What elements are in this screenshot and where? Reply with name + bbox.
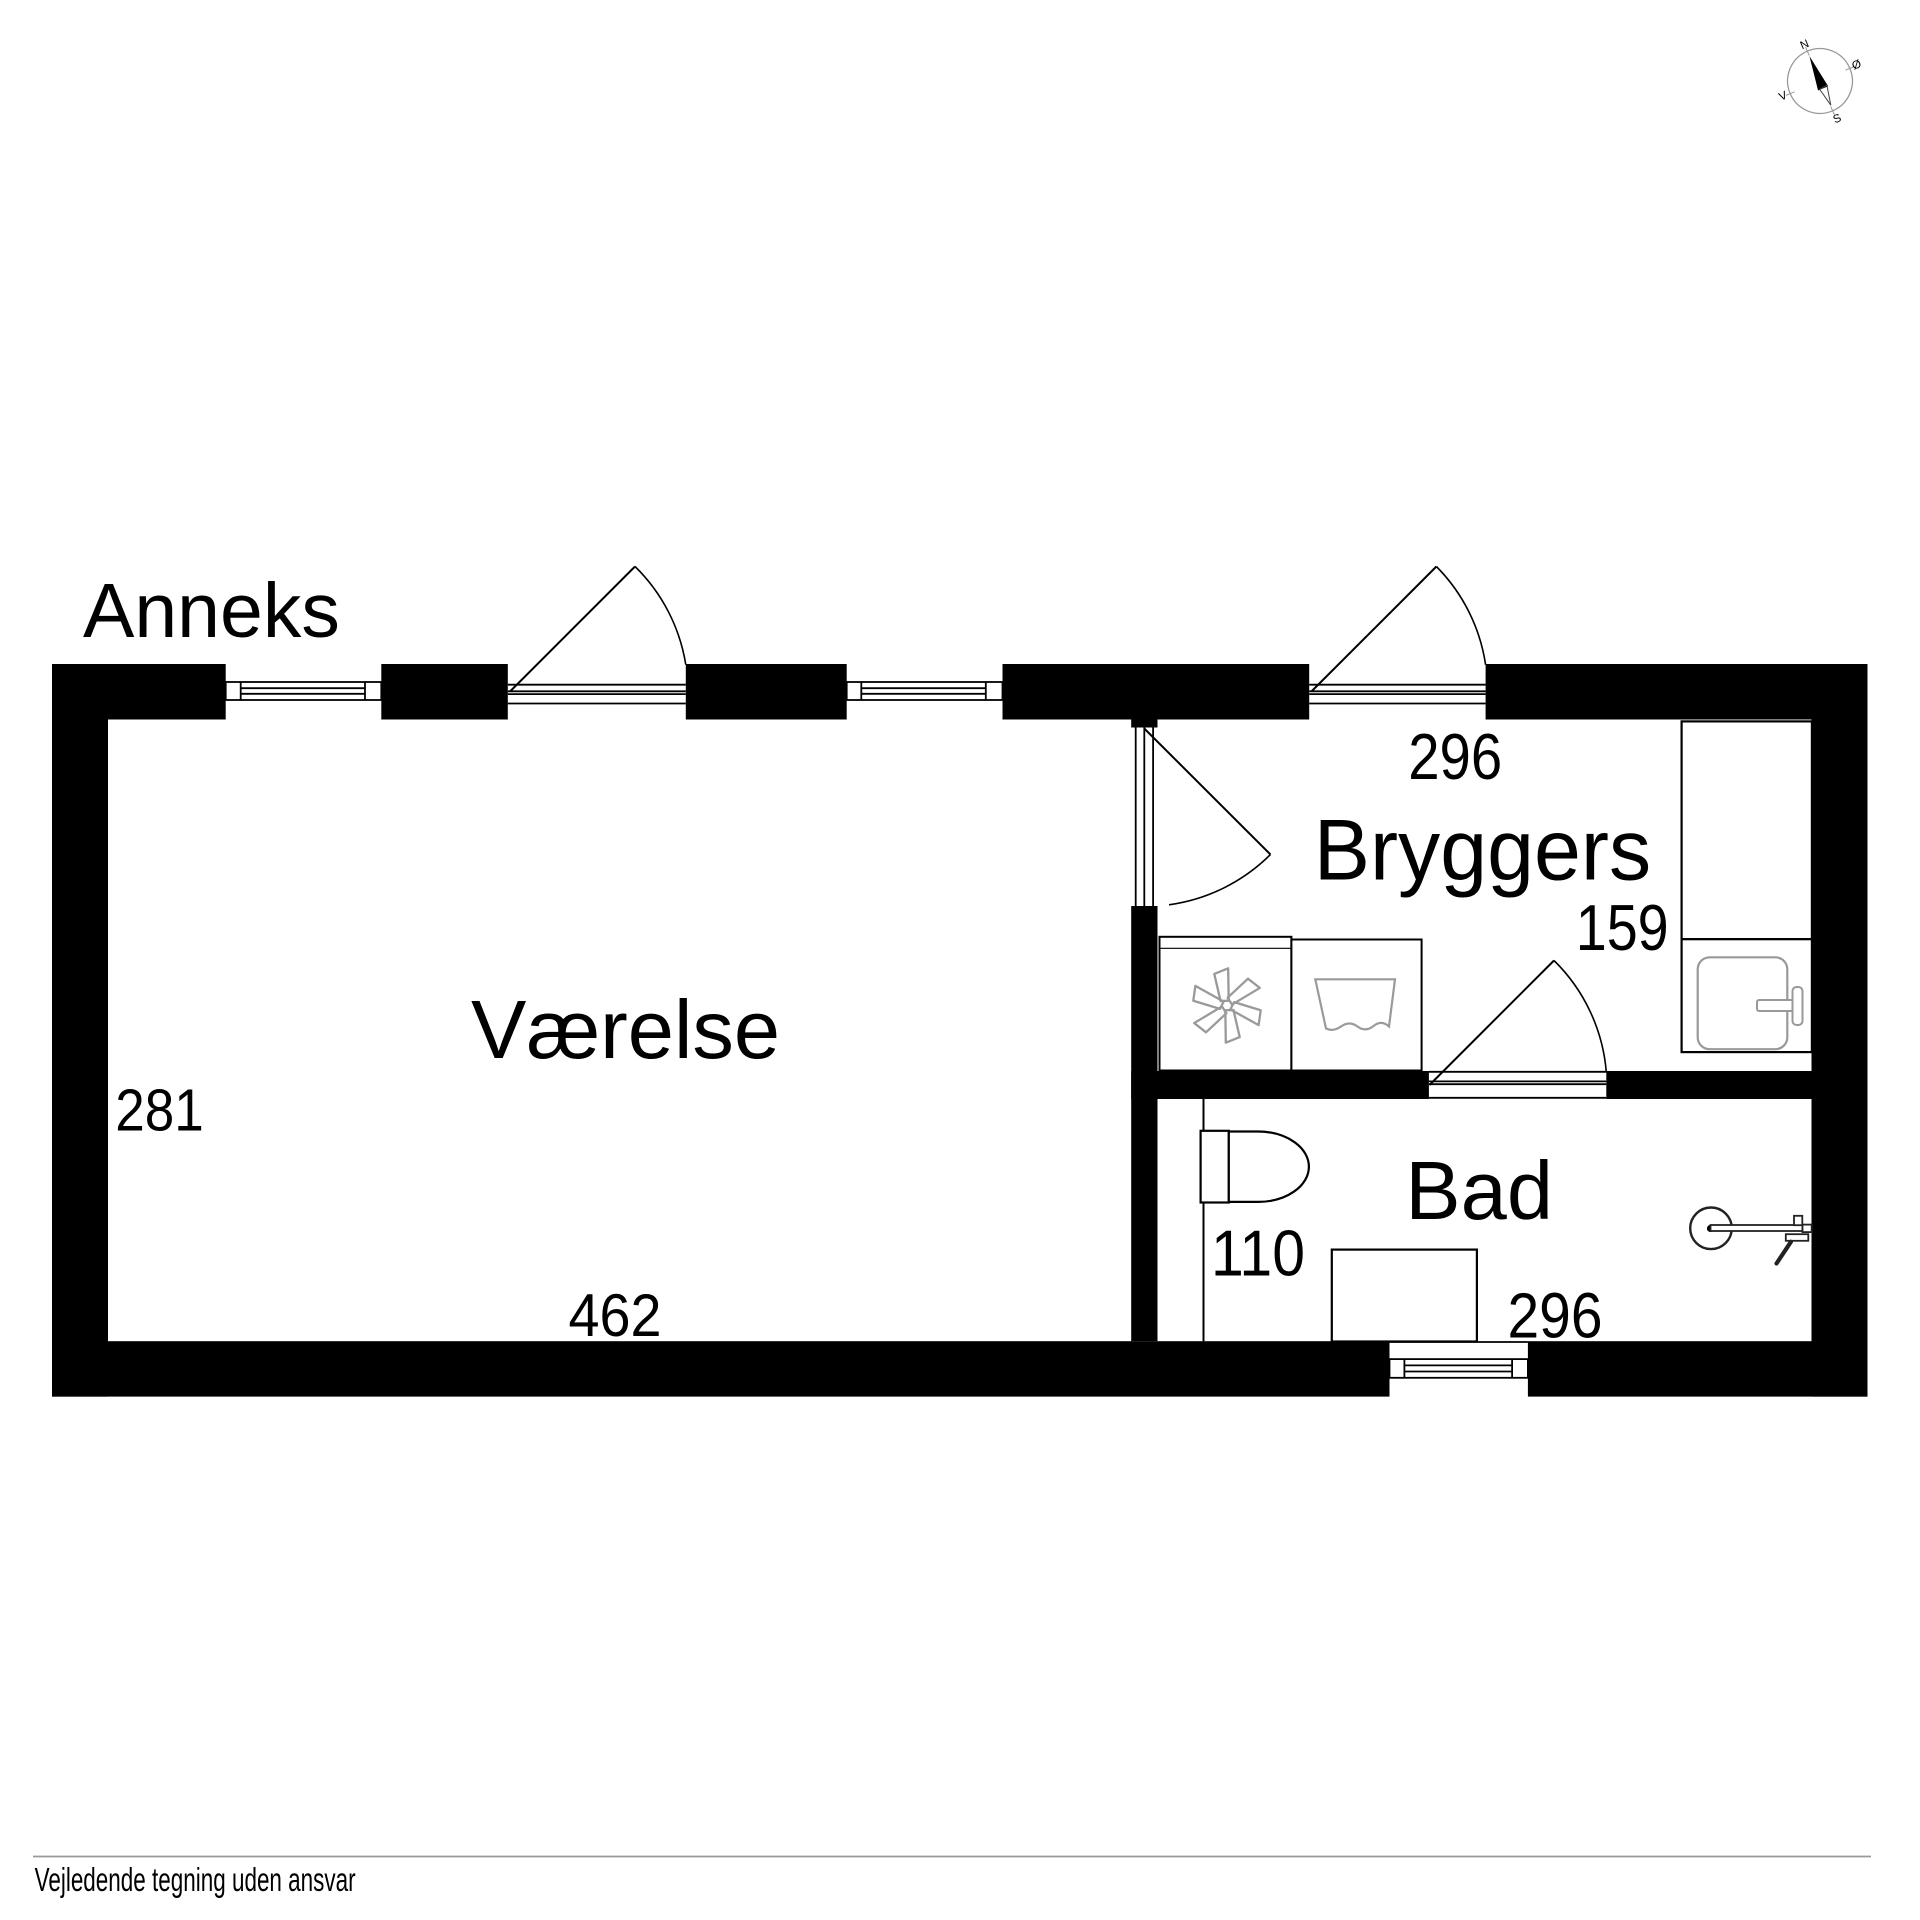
svg-text:Bryggers: Bryggers	[1314, 803, 1652, 899]
svg-text:296: 296	[1408, 720, 1502, 793]
svg-text:Vejledende tegning uden ansvar: Vejledende tegning uden ansvar	[35, 1861, 356, 1898]
svg-text:281: 281	[115, 1077, 204, 1143]
svg-text:Anneks: Anneks	[83, 568, 340, 654]
svg-text:Værelse: Værelse	[471, 983, 780, 1076]
svg-text:462: 462	[569, 1282, 662, 1349]
svg-text:Bad: Bad	[1405, 1144, 1553, 1237]
svg-text:296: 296	[1508, 1280, 1603, 1352]
svg-text:159: 159	[1576, 891, 1669, 964]
svg-text:110: 110	[1211, 1216, 1305, 1289]
